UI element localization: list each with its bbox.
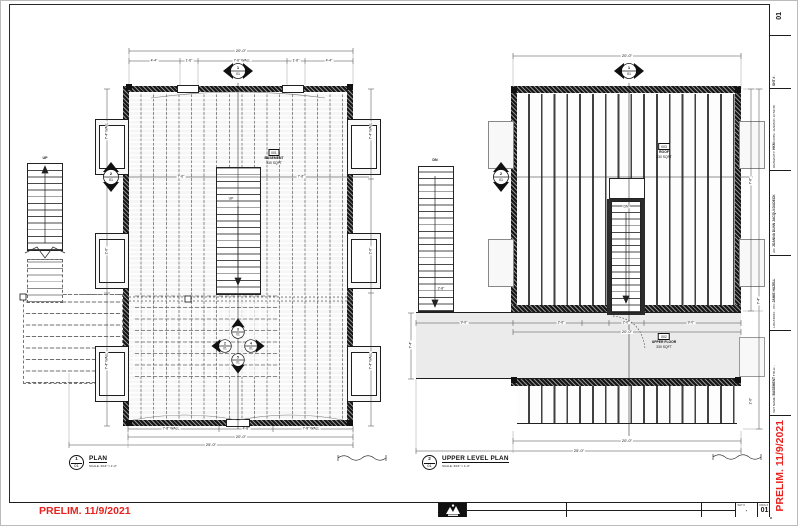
plan2-cut-lines [509,83,753,436]
strip-location-cell: LOCATION: - PO: JAMIE HAZELL [770,256,791,331]
dim-label: 20'-0" [621,54,633,58]
tb-people-row: PO: JAMIE HAZELL AD: JOANNA DUNN JACQUI … [567,510,701,517]
marker-number: 2 [500,172,502,176]
dim-label: 20'-0" [235,435,247,439]
plan2-stair-arrows [432,176,629,307]
prelim-stamp-horizontal: PRELIM. 11/9/2021 [39,505,131,517]
plan1-cut-lines [119,83,369,429]
date-label: DATE: [772,133,776,142]
plan2-callout: 2 01 [422,455,437,470]
stair-direction-label: DN [431,159,438,163]
set-name-value: BASEMENT [772,377,776,396]
dim-label: 7'-6" WALL [233,59,252,62]
set-name-label: SET NAME: [772,396,776,413]
right-title-strip: 01 SHT # - DRAWN BY: HKM DATE: 11/9/2021… [769,4,791,517]
dim-label: 7'-4" [409,341,412,350]
room-tag-id: 002 [658,333,670,340]
dim-label: 7'-8" WALL [162,427,181,430]
title-value: - [772,365,776,366]
location-value: - [772,310,776,311]
plan2-title: UPPER LEVEL PLAN [442,455,509,463]
room-tag-area: 330 SQFT [656,345,672,349]
plan1-scale-squiggle [338,455,386,461]
strip-drawn-cell: DRAWN BY: HKM DATE: 11/9/2021 10:52:38 [770,89,791,171]
plan1-stair-arrows [42,166,241,285]
drawn-by-label: DRAWN BY: [772,151,776,168]
marker-sheet: 01 [499,179,503,183]
callout-sheet: 01 [70,464,83,468]
dim-label: 2'-8" [437,287,446,290]
plan1-dimension-lines [69,48,374,448]
callout-sheet: 01 [423,464,436,468]
marker-sheet: 01 [236,333,240,336]
stair-direction-label: UP [228,197,235,200]
marker-number: 3 [237,328,239,331]
tb-date-row: DATE: 11/9/2021 10:52:38 [702,510,735,517]
marker-number: 1 [237,66,239,70]
marker-sheet: 01 [109,179,113,183]
drawn-by-value: HKM [772,142,776,150]
plan2-scale-squiggle [713,454,761,460]
tb-drawn-col: DRAWN BY: HKM DATE: 11/9/2021 10:52:38 [701,503,735,517]
sht-label: SHT # [772,77,776,86]
dim-label: 4'-4" [325,59,334,62]
room-tag-id: 003 [658,143,670,150]
tb-dwg-col: DWG # 01 [757,503,771,517]
sht-value: - [736,508,757,514]
sht-value: - [772,75,776,76]
strip-ad: AD: JOANNA DUNN JACQUI DUDECK [772,173,777,253]
po-label: PO: [772,303,776,308]
plan2-room-tag: 002 UPPER FLOOR 330 SQFT [652,333,677,349]
tb-setname-row: SET NAME: BASEMENT [467,503,566,510]
plan1-scale-note: SCALE: 3/16" = 1'-0" [89,464,117,468]
logo-glyph [439,503,467,517]
dim-label: 7'-6" [297,175,306,178]
sht-label: SHT # [738,504,745,507]
tb-title-row: TITLE: - [467,510,566,517]
strip-sht: SHT # - [772,38,777,86]
date-value: 11/9/2021 10:52:38 [772,105,776,131]
dim-label: 25'-0" [205,443,217,447]
dim-label: 4'-8" [242,427,251,430]
drawing-sheet: 20'-0" 4'-4" 1'-6" 7'-6" WALL 1'-6" 4'-4… [0,0,798,526]
tb-setname-col: SET NAME: BASEMENT TITLE: - [466,503,566,517]
dim-label: 25'-0" [573,449,585,453]
dim-label: 9'-0" [687,321,696,324]
stair-direction-label: DN [623,205,630,208]
plan1-room-tag: 001 BASEMENT 330 SQFT [264,149,283,165]
room-tag-id: 001 [268,149,280,156]
marker-number: 2 [110,172,112,176]
strip-dwg-cell: 01 [770,4,791,36]
plan1-title: PLAN [89,455,107,463]
tb-sht-col: SHT # - [735,503,757,517]
plan1-callout: 1 01 [69,455,84,470]
marker-sheet: 01 [627,73,631,77]
ad-value-2: JACQUI DUDECK [772,194,776,221]
dim-label: 1'-6" [185,59,194,62]
plan1-beam-lines [129,297,351,301]
title-label: TITLE: [772,367,776,376]
dim-label: 2'-6" [369,247,372,256]
plan-linework [1,1,798,526]
dwg-value: 01 [758,507,771,514]
marker-number: 1 [628,66,630,70]
dim-label: 7'-6" [177,175,186,178]
marker-number: 5 [237,356,239,359]
company-logo [438,503,466,517]
po-value: JAMIE HAZELL [772,279,776,303]
strip-drawn: DRAWN BY: HKM DATE: 11/9/2021 10:52:38 [772,91,777,168]
strip-ad-cell: AD: JOANNA DUNN JACQUI DUDECK [770,171,791,256]
tb-location-row: LOCATION: - [567,503,701,510]
dim-label: 2'-6" [557,321,566,324]
prelim-stamp-vertical: PRELIM. 11/9/2021 [774,420,786,512]
dim-label: 20'-0" [621,439,633,443]
strip-location: LOCATION: - PO: JAMIE HAZELL [772,258,777,328]
marker-sheet: 01 [236,73,240,77]
plan2-roof-tag: 003 ROOF 330 SQFT [656,143,672,159]
dim-label: 1'-6" [292,59,301,62]
callout-number: 1 [70,457,83,462]
bottom-title-block: PRELIM. 11/9/2021 SET NAME: BASEMENT TIT… [9,502,769,517]
location-label: LOCATION: [772,312,776,328]
plan2-scale-note: SCALE: 3/16" = 1'-0" [442,464,470,468]
ad-label: AD: [772,248,776,253]
dim-label: 7'-4" WALL [369,352,372,371]
plan1-corner-posts [126,84,353,426]
tb-drawnby-row: DRAWN BY: HKM [702,503,735,510]
dim-label: 7'-4" [757,297,760,306]
dim-label: 7'-4" WALL [105,122,108,141]
room-tag-area: 330 SQFT [266,161,282,165]
strip-setname: SET NAME: BASEMENT TITLE: - [772,333,777,413]
plan1-break-line [25,247,65,258]
room-tag-area: 330 SQFT [656,155,672,159]
marker-sheet: 01 [223,347,227,350]
strip-sht-cell: SHT # - [770,36,791,89]
marker-number: 4 [250,342,252,345]
strip-setname-cell: SET NAME: BASEMENT TITLE: - [770,331,791,416]
marker-sheet: 01 [249,347,253,350]
strip-dwg-value: 01 [776,12,783,20]
ad-value-1: JOANNA DUNN [772,223,776,247]
dim-label: 2'-6" [105,247,108,256]
dim-label: 7'-8" WALL [302,427,321,430]
dim-label: 4'-4" [150,59,159,62]
marker-number: 2 [224,342,226,345]
stair-direction-label: UP [42,157,49,161]
dim-label: 20'-0" [621,330,633,334]
plan2-dimension-lines [408,53,763,454]
dim-label: 20'-0" [235,49,247,53]
tb-location-col: LOCATION: - PO: JAMIE HAZELL AD: JOANNA … [566,503,701,517]
marker-sheet: 01 [236,361,240,364]
dim-label: 2'-6" [749,397,752,406]
dim-label: 9'-0" [460,321,469,324]
dim-label: 7'-4" WALL [105,352,108,371]
strip-prelim-cell: PRELIM. 11/9/2021 [770,416,791,519]
dim-label: 7'-4" WALL [369,122,372,141]
dim-label: 2'-0" [622,321,631,324]
dim-label: 7'-6" [749,177,752,186]
callout-number: 2 [423,457,436,462]
